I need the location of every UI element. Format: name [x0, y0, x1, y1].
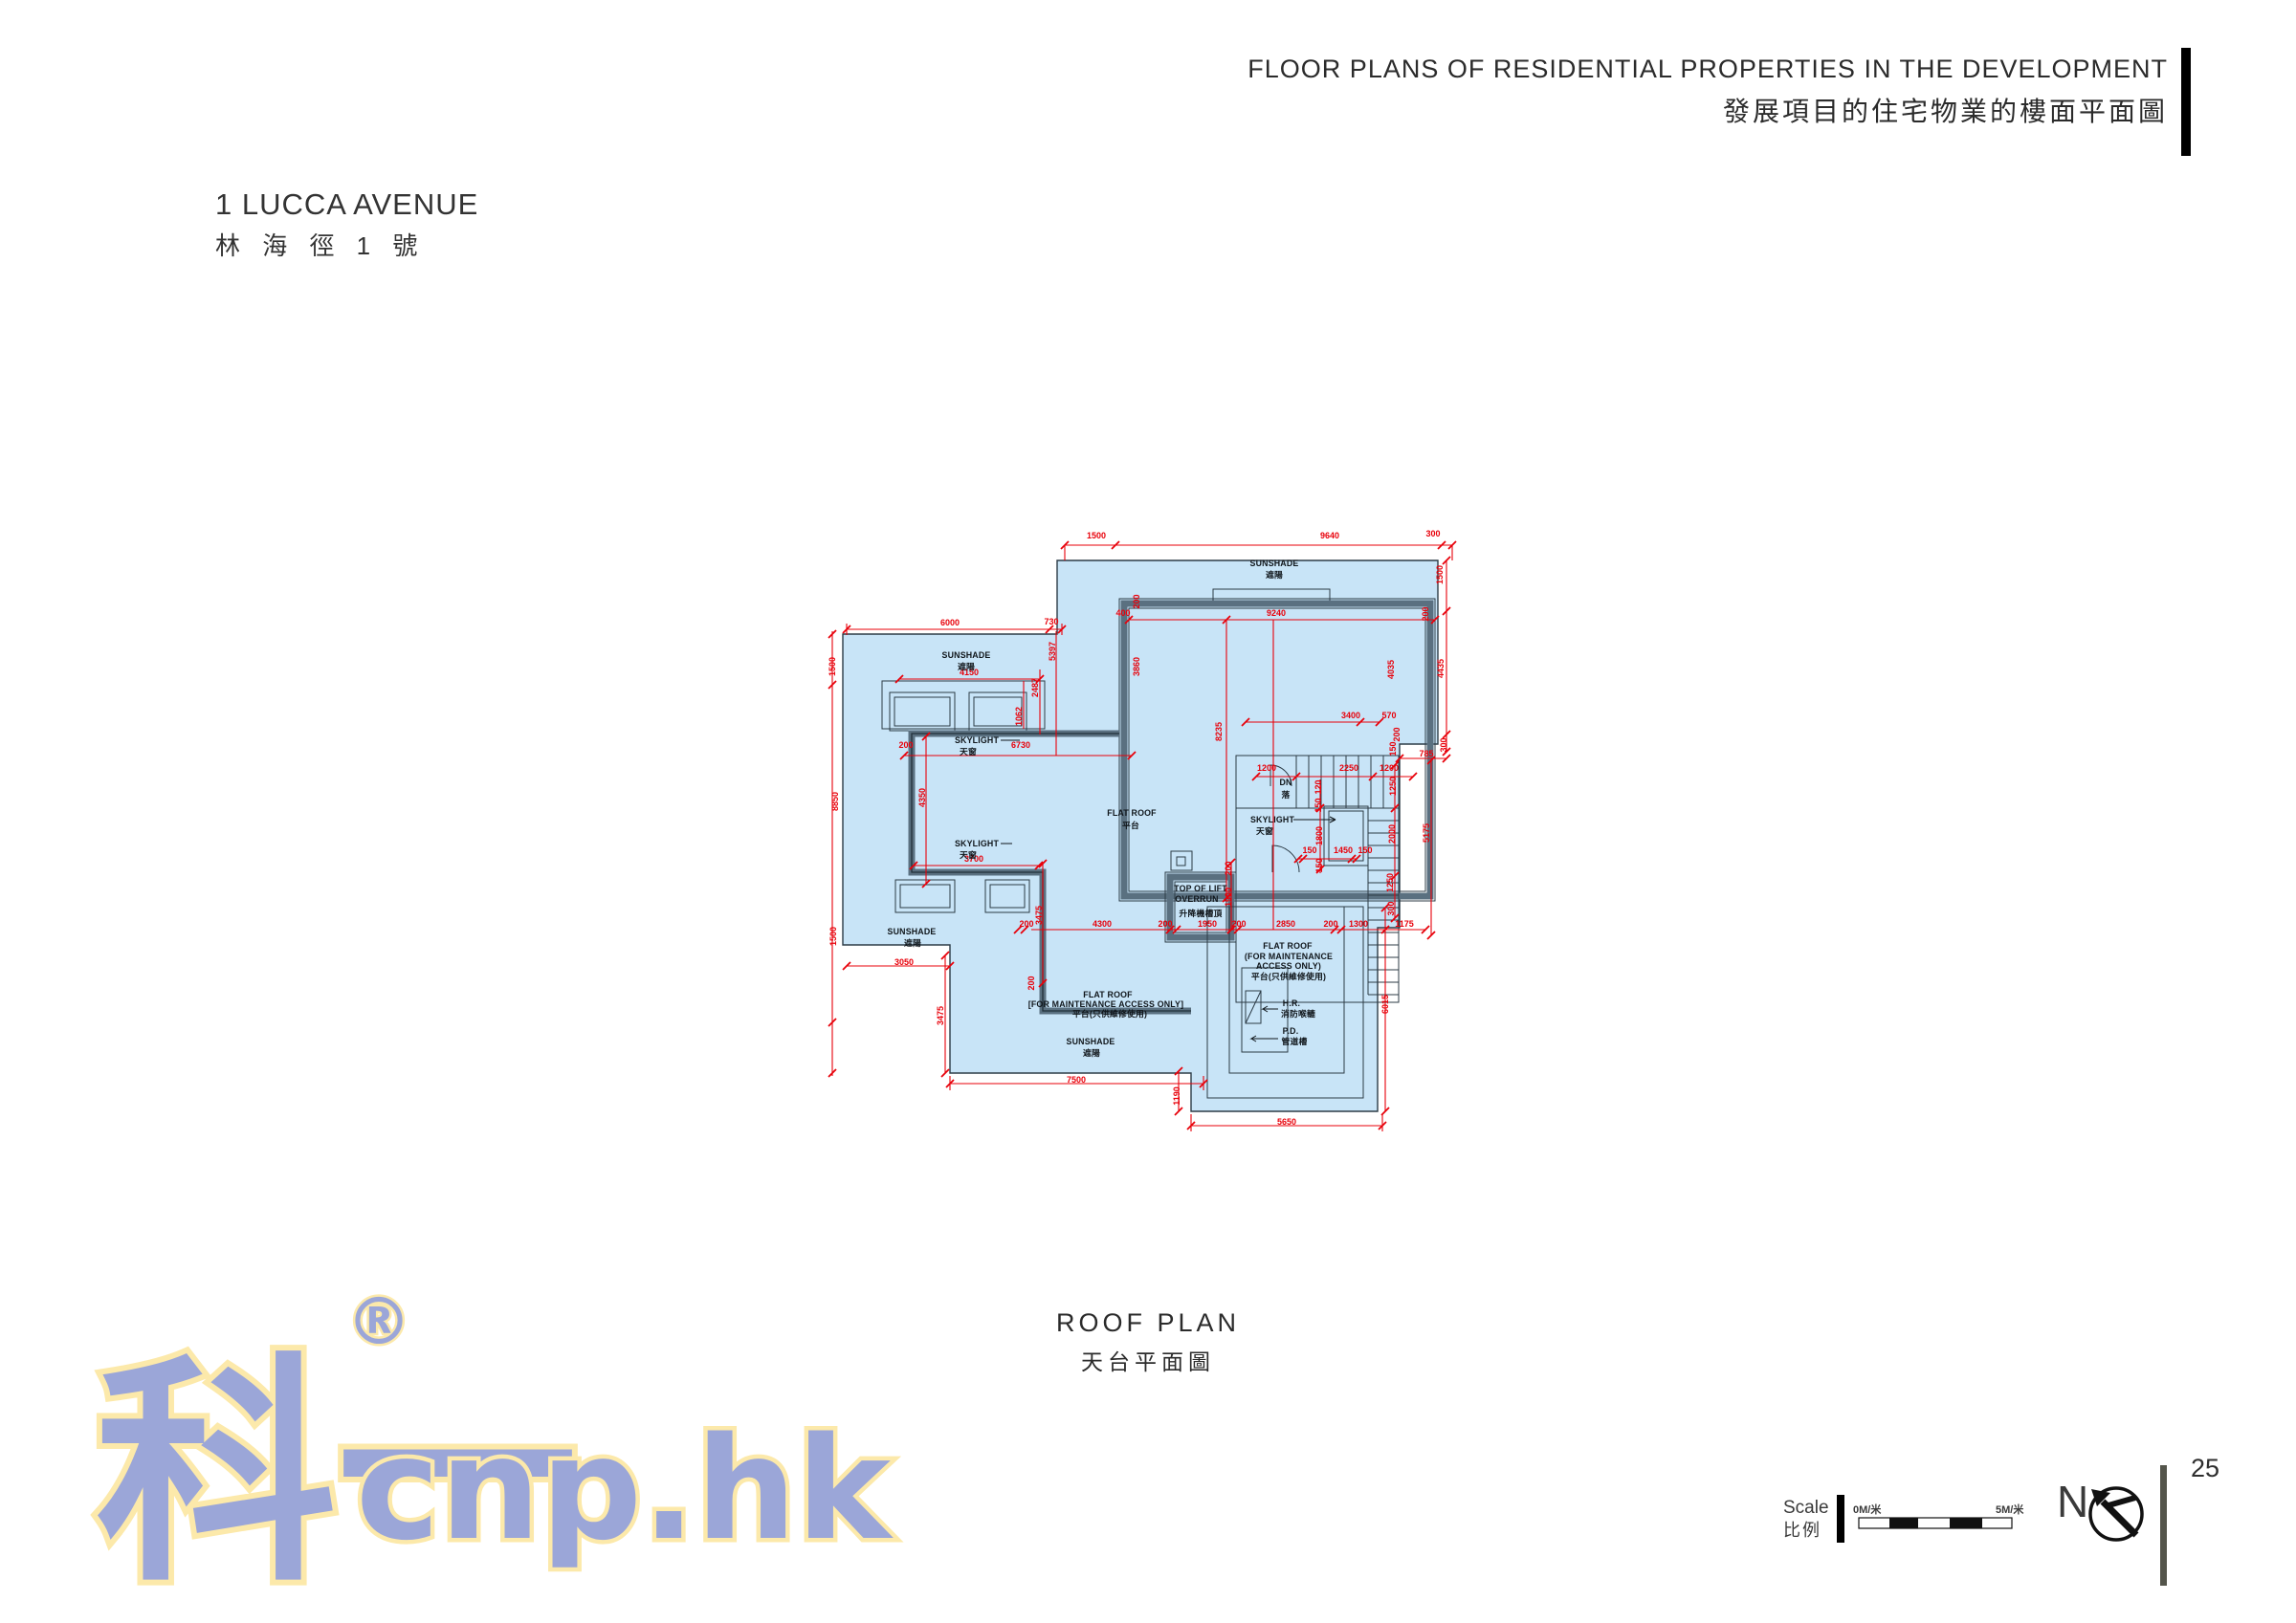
scale-end-label: 5M/米 [1996, 1502, 2024, 1516]
footer-graphics: Scale 比例 0M/米 5M/米 N [0, 0, 2296, 1623]
north-arrow-icon: N [2057, 1477, 2142, 1540]
scale-label-en: Scale [1783, 1498, 1829, 1518]
north-letter: N [2057, 1477, 2088, 1526]
scale-divider-bar [1837, 1495, 1844, 1543]
scale-bar [1859, 1518, 2012, 1528]
page-number-rule [2160, 1465, 2167, 1586]
page: { "header": { "title_en": "FLOOR PLANS O… [0, 0, 2296, 1623]
scale-start-label: 0M/米 [1853, 1502, 1882, 1516]
scale-label-zh: 比例 [1783, 1521, 1821, 1540]
page-number: 25 [2191, 1454, 2219, 1483]
